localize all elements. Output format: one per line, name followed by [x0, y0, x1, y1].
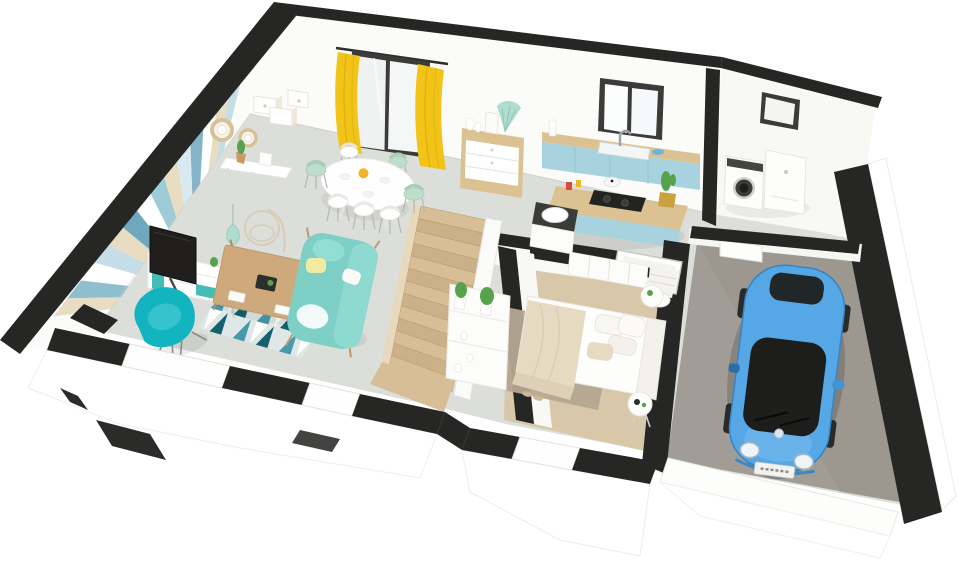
- blue-dish: [652, 149, 664, 155]
- hood-badge: [774, 428, 784, 438]
- hall-console-with-plants: [446, 282, 510, 390]
- floorplan-svg: 3D isometric cutaway rendering of a sing…: [0, 0, 960, 576]
- side-mirror-left: [728, 363, 740, 373]
- yellow-pillow: [306, 258, 326, 273]
- floorplan-3d-render: 3D isometric cutaway rendering of a sing…: [0, 0, 960, 576]
- washbasin: [530, 202, 578, 254]
- picture-frame: [485, 112, 498, 134]
- washing-machine: [724, 156, 764, 210]
- red-jar: [566, 182, 572, 190]
- bottle: [549, 120, 556, 136]
- kitchen-window: [598, 78, 664, 140]
- dryer: [764, 150, 806, 214]
- side-mirror-right: [832, 380, 845, 390]
- car-roof-windshield: [741, 336, 828, 439]
- yellow-jar: [576, 180, 581, 187]
- bedside-table-back: [641, 285, 663, 307]
- cooking-pot: [604, 177, 620, 187]
- door-pane-left: [356, 56, 387, 150]
- laundry-room: [724, 150, 810, 218]
